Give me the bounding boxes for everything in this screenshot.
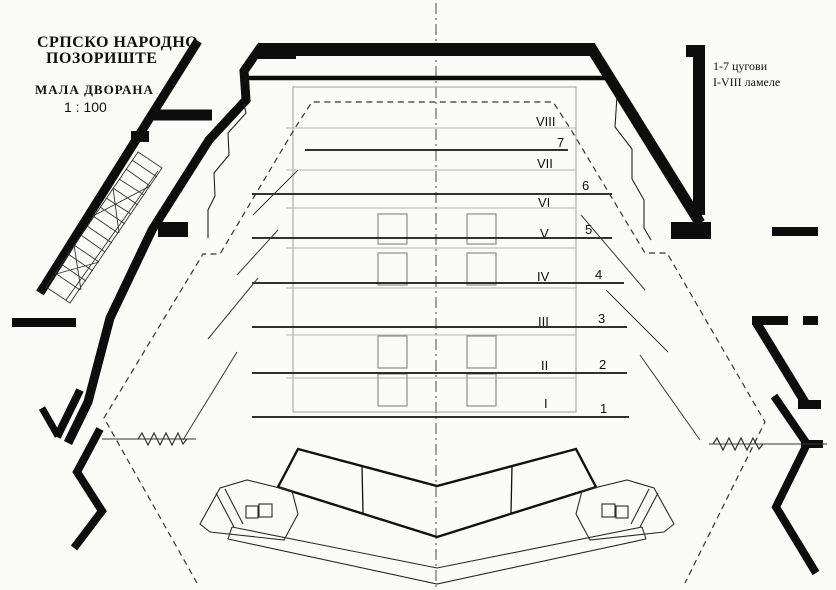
floor-plan-drawing: 7 6 5 4 3 2 1 VIII VII VI V IV III II I: [0, 0, 836, 590]
wall-corner-right: [590, 46, 700, 223]
apron-upper-v: [278, 449, 596, 537]
wall-right-mid-bar: [803, 316, 818, 325]
stair-tread: [87, 226, 112, 243]
wall-far-left-bar: [12, 318, 76, 327]
stair-tread: [106, 198, 131, 214]
wagon-stripe: [225, 489, 243, 524]
wall-left-fragment: [42, 408, 58, 436]
stair-direction-line: [113, 188, 119, 233]
stage-outline: [293, 87, 576, 412]
apron-lower-outer-edge: [228, 539, 646, 584]
lamela-label: V: [540, 226, 549, 241]
wagon-outline: [200, 480, 298, 540]
theatre-floor-plan-sheet: 7 6 5 4 3 2 1 VIII VII VI V IV III II I: [0, 0, 836, 590]
cug-label: 2: [599, 357, 606, 372]
wall-left-tab: [158, 222, 188, 237]
apron-band-cap: [642, 527, 646, 539]
proscenium-apron: [200, 449, 674, 584]
walls: [12, 43, 823, 448]
cug-label: 6: [582, 178, 589, 193]
sheet-title-line1: СРПСКО НАРОДНО: [37, 34, 198, 51]
sightline-right: [606, 290, 668, 352]
legend: 1-7 цугови I-VIII ламеле: [713, 59, 780, 89]
stage-trap-square: [467, 214, 496, 244]
stair-tread: [100, 207, 125, 224]
stair-tread: [119, 179, 144, 195]
lamela-label: III: [538, 314, 549, 329]
wall-top-band-end: [258, 43, 296, 59]
wagon-block: [246, 506, 258, 518]
staircase-left: [46, 152, 162, 303]
stage-trap-square: [467, 336, 496, 368]
sightline-diagonals: [183, 170, 700, 440]
lamela-label: VIII: [536, 114, 556, 129]
stair-outline: [46, 152, 162, 303]
wagon-stripe: [640, 493, 658, 527]
cug-label: 3: [598, 311, 605, 326]
stair-tread: [55, 273, 80, 290]
apron-lower-inner-edge: [232, 527, 642, 568]
stage-wagon-right: [576, 480, 674, 540]
wall-right-vertical-tab: [686, 45, 705, 57]
stage-trap-square: [378, 253, 407, 285]
sightline-right: [640, 355, 700, 440]
apron-panel-divider: [362, 466, 363, 513]
stair-tread: [74, 245, 99, 262]
cug-lines: [252, 150, 629, 417]
stage-trap-square: [467, 253, 496, 285]
lamela-label: II: [541, 358, 548, 373]
wall-right-mid-diagonal: [756, 322, 806, 404]
stage-trap-square: [378, 374, 407, 406]
sightline-left: [208, 278, 258, 339]
stair-tread: [81, 235, 105, 252]
lamela-strip-lines: [286, 128, 576, 378]
wall-right-vertical: [693, 46, 705, 215]
lamela-label: VII: [537, 156, 553, 171]
hall-name-label: МАЛА ДВОРАНА: [35, 82, 154, 97]
sightline-left: [237, 230, 278, 275]
apron-panel-divider: [511, 466, 512, 513]
cug-label: 1: [600, 401, 607, 416]
wagon-block: [602, 504, 615, 517]
lamela-label: VI: [538, 195, 550, 210]
cug-label: 4: [595, 267, 602, 282]
stair-tread: [126, 169, 150, 186]
wagon-block: [259, 504, 272, 517]
stage-platform: [286, 87, 576, 412]
wall-top-band: [258, 43, 595, 56]
stage-wagon-left: [200, 480, 298, 540]
sightline-left: [183, 352, 237, 440]
wall-far-right-bar: [772, 227, 818, 236]
legend-cugovi-label: 1-7 цугови: [713, 59, 768, 73]
legend-lamele-label: I-VIII ламеле: [713, 75, 780, 89]
apron-lower-band: [228, 527, 646, 584]
lamela-label: IV: [537, 269, 550, 284]
wall-right-foot: [671, 222, 711, 239]
wagon-stripe: [216, 493, 234, 527]
stair-tread: [68, 254, 93, 271]
wagon-outline: [576, 480, 674, 540]
wall-outer-left: [40, 41, 198, 293]
stair-tread: [113, 188, 138, 205]
stage-trap-square: [378, 336, 407, 368]
lamela-label: I: [544, 396, 548, 411]
sightline-right: [581, 215, 645, 290]
apron-band-cap: [228, 527, 232, 539]
section-break-symbols: [102, 433, 827, 450]
lamela-labels: VIII VII VI V IV III II I: [536, 114, 556, 411]
wall-right-low-zigzag: [774, 396, 816, 573]
wall-left-zigzag: [74, 429, 102, 548]
stair-tread: [93, 216, 118, 233]
stage-trap-square: [378, 214, 407, 244]
stage-trap-square: [467, 374, 496, 406]
wagon-stripe: [631, 489, 649, 524]
cug-label: 7: [557, 135, 564, 150]
stage-trap-squares: [378, 214, 496, 406]
wagon-block: [616, 506, 628, 518]
scale-label: 1 : 100: [64, 99, 107, 115]
sheet-title-line2: ПОЗОРИШТЕ: [46, 50, 157, 67]
